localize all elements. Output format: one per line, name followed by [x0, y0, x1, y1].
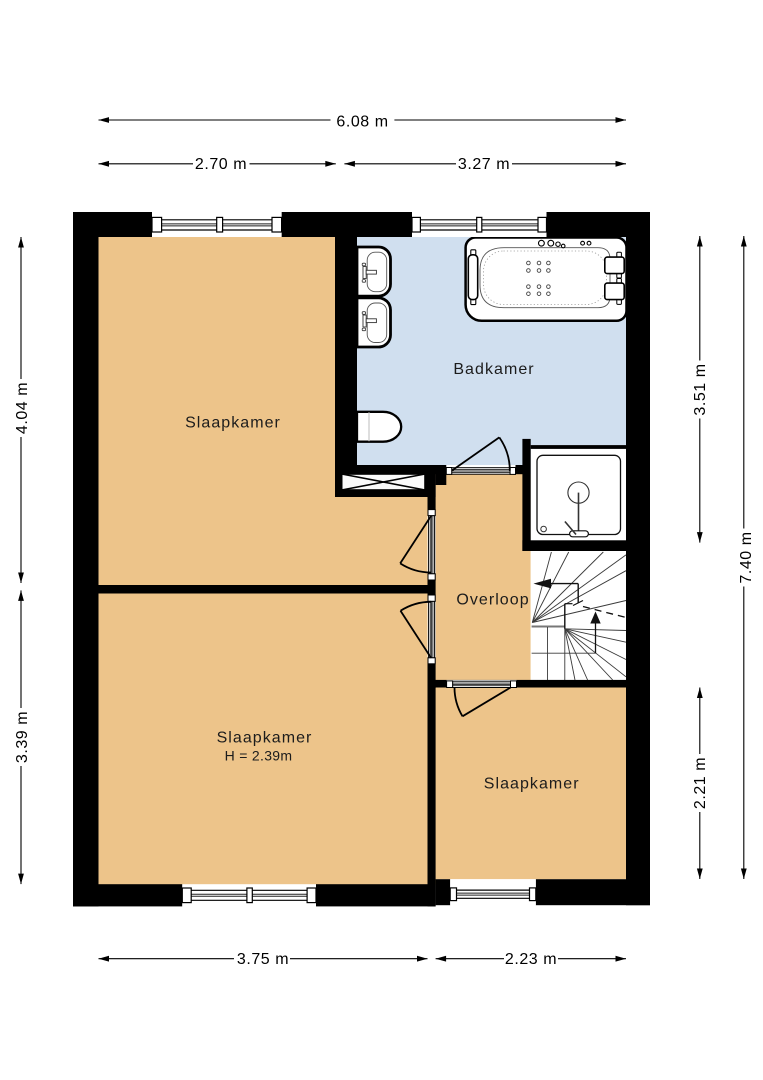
- svg-text:7.40 m: 7.40 m: [738, 531, 755, 583]
- svg-text:4.04 m: 4.04 m: [14, 382, 31, 434]
- svg-text:Slaapkamer: Slaapkamer: [484, 776, 580, 793]
- svg-text:2.70 m: 2.70 m: [195, 156, 247, 173]
- svg-text:Badkamer: Badkamer: [453, 361, 534, 378]
- svg-text:6.08 m: 6.08 m: [336, 113, 388, 130]
- svg-text:2.21 m: 2.21 m: [692, 757, 709, 809]
- svg-text:2.23 m: 2.23 m: [505, 951, 557, 968]
- svg-text:3.27 m: 3.27 m: [458, 156, 510, 173]
- svg-text:3.39 m: 3.39 m: [14, 711, 31, 763]
- svg-text:Slaapkamer: Slaapkamer: [185, 415, 281, 432]
- svg-text:H = 2.39m: H = 2.39m: [225, 748, 293, 764]
- svg-text:3.75 m: 3.75 m: [237, 951, 289, 968]
- svg-text:Overloop: Overloop: [456, 592, 529, 609]
- svg-text:3.51 m: 3.51 m: [692, 363, 709, 415]
- svg-text:Slaapkamer: Slaapkamer: [217, 730, 313, 747]
